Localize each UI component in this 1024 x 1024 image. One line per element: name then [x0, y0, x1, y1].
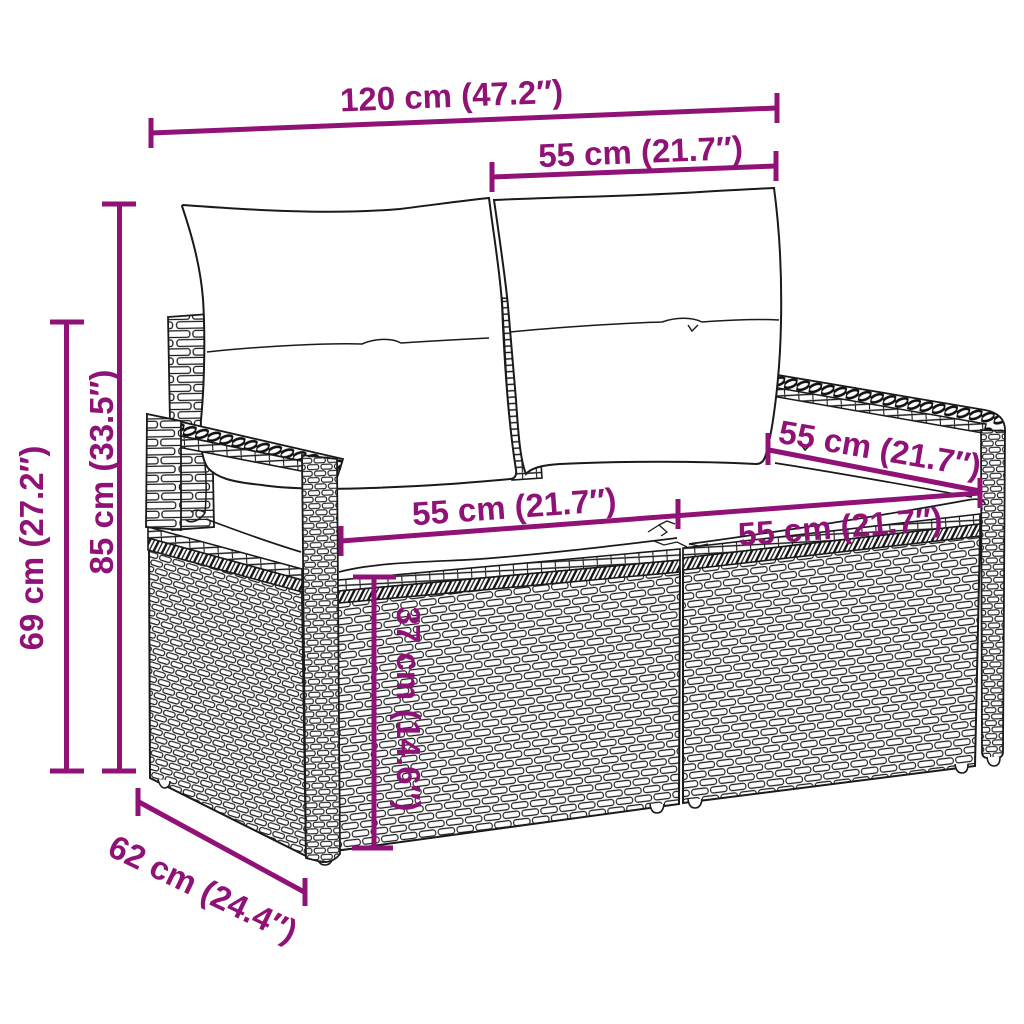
svg-text:37 cm (14.6″): 37 cm (14.6″) [390, 607, 427, 812]
svg-text:69 cm (27.2″): 69 cm (27.2″) [13, 446, 50, 651]
svg-text:85 cm (33.5″): 85 cm (33.5″) [83, 370, 120, 575]
